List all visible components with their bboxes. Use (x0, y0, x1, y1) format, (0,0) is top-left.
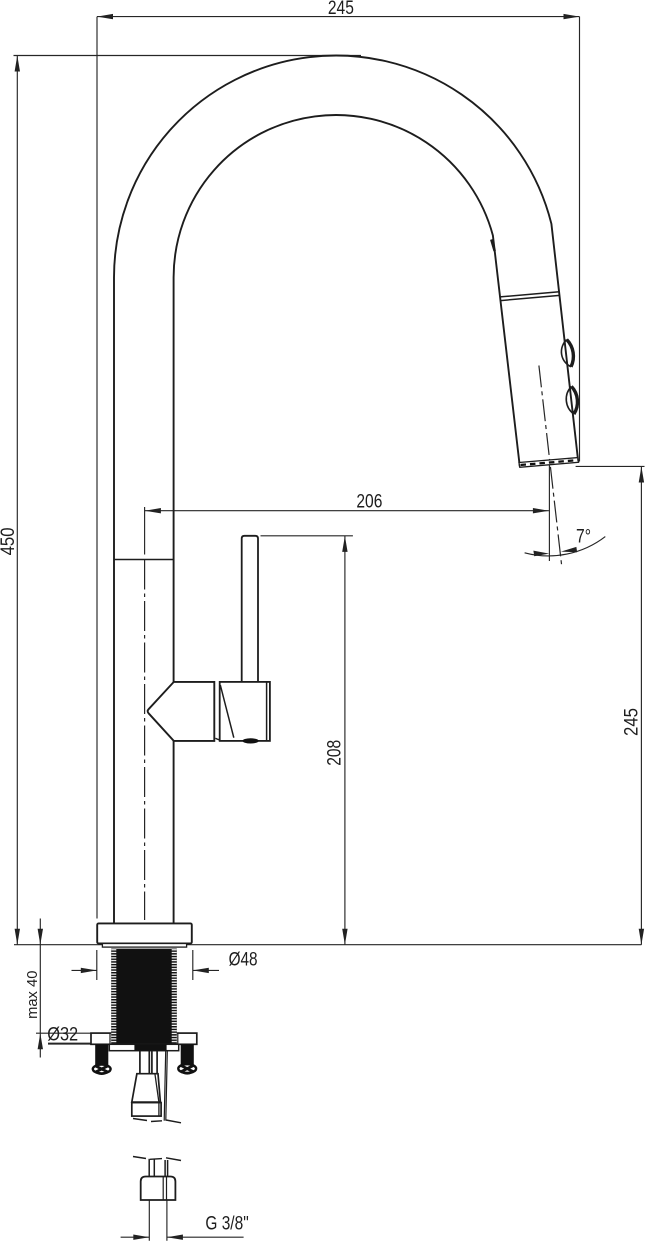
svg-text:Ø48: Ø48 (229, 949, 258, 970)
svg-text:7°: 7° (576, 527, 591, 548)
svg-text:245: 245 (328, 0, 354, 19)
svg-text:450: 450 (0, 527, 19, 555)
svg-text:206: 206 (356, 491, 382, 512)
svg-text:245: 245 (622, 708, 643, 736)
svg-text:max 40: max 40 (24, 971, 41, 1019)
svg-text:G 3/8": G 3/8" (205, 1214, 248, 1235)
svg-text:Ø32: Ø32 (47, 1025, 78, 1046)
svg-text:208: 208 (325, 740, 346, 766)
